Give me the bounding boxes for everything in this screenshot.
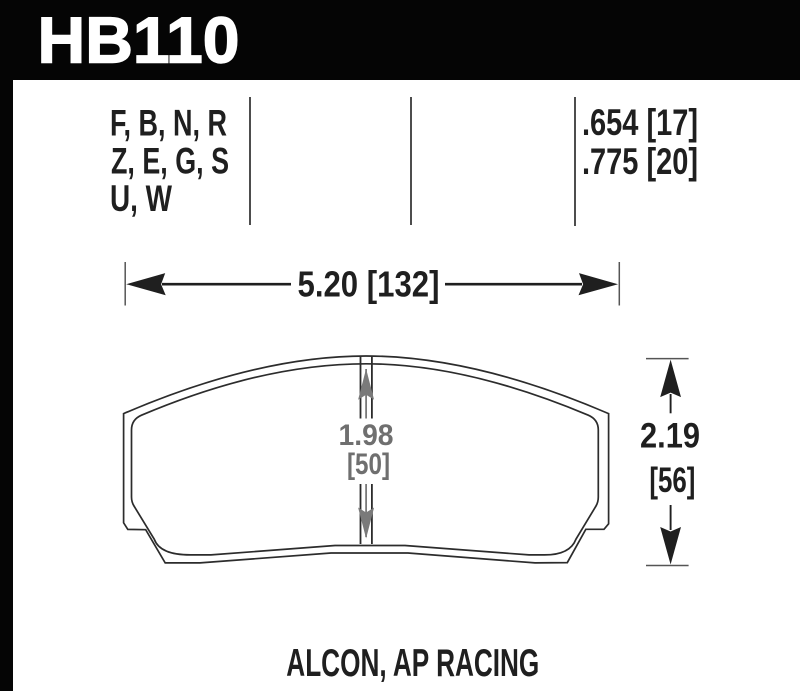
svg-text:2.19: 2.19 [640,417,700,456]
svg-text:HB110: HB110 [38,5,240,77]
svg-text:[56]: [56] [649,461,695,500]
svg-text:.654 [17]: .654 [17] [582,101,698,143]
svg-text:F, B, N, R: F, B, N, R [110,102,227,144]
svg-text:.775 [20]: .775 [20] [582,140,698,182]
svg-text:U, W: U, W [110,177,173,219]
svg-text:ALCON, AP RACING: ALCON, AP RACING [286,642,539,685]
svg-text:5.20 [132]: 5.20 [132] [298,265,440,305]
svg-text:Z, E, G, S: Z, E, G, S [111,139,229,181]
svg-text:[50]: [50] [347,448,390,481]
